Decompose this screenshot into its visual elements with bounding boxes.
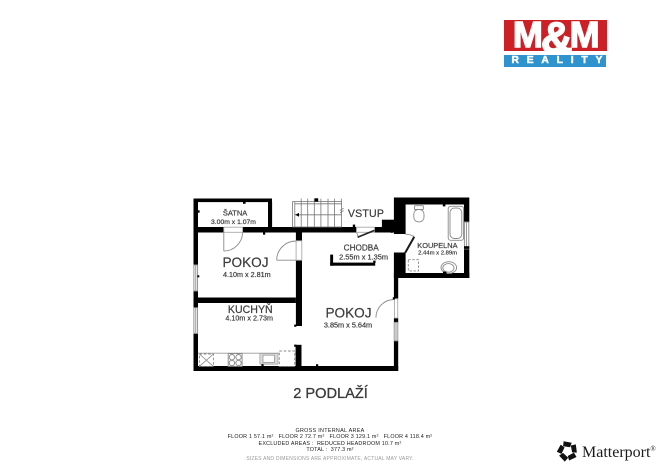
svg-text:3.85m x 5.64m: 3.85m x 5.64m <box>324 321 372 330</box>
svg-text:3.00m x 1.07m: 3.00m x 1.07m <box>211 219 256 226</box>
svg-text:POKOJ: POKOJ <box>222 255 268 270</box>
svg-text:POKOJ: POKOJ <box>325 306 371 321</box>
svg-text:KOUPELNA: KOUPELNA <box>417 241 457 250</box>
svg-text:CHODBA: CHODBA <box>344 244 380 253</box>
svg-text:4.10m x 2.81m: 4.10m x 2.81m <box>223 270 271 279</box>
svg-text:2.55m x 1.35m: 2.55m x 1.35m <box>339 252 388 261</box>
svg-text:VSTUP: VSTUP <box>348 208 384 220</box>
svg-text:ŠATNA: ŠATNA <box>223 208 247 217</box>
svg-text:4.10m x 2.73m: 4.10m x 2.73m <box>225 313 273 322</box>
svg-text:2.44m x 2.89m: 2.44m x 2.89m <box>418 251 457 257</box>
